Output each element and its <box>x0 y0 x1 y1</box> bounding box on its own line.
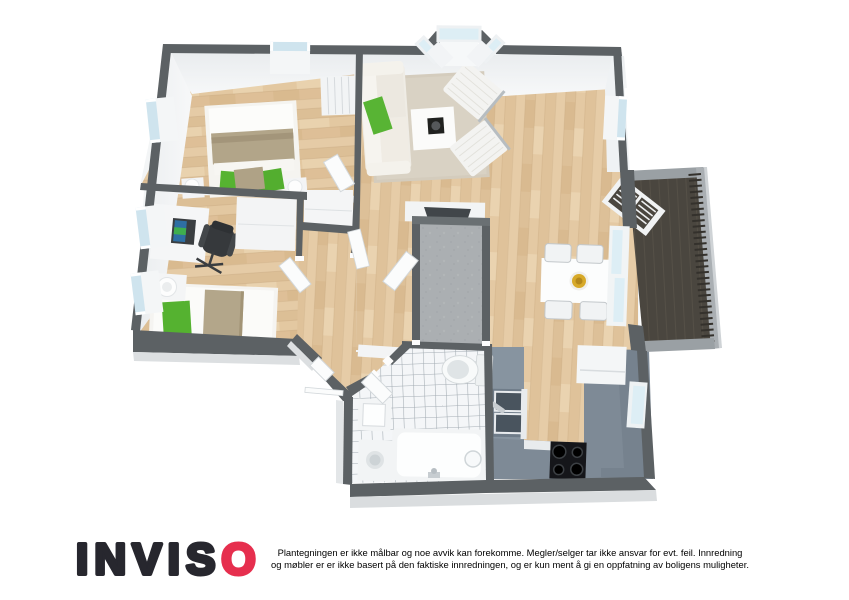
svg-text:INVISO: INVISO <box>76 535 262 584</box>
svg-text:Plantegningen er ikke målbar o: Plantegningen er ikke målbar og noe avvi… <box>278 547 743 558</box>
svg-text:og møbler er er ikke basert på: og møbler er er ikke basert på den fakti… <box>271 559 749 570</box>
